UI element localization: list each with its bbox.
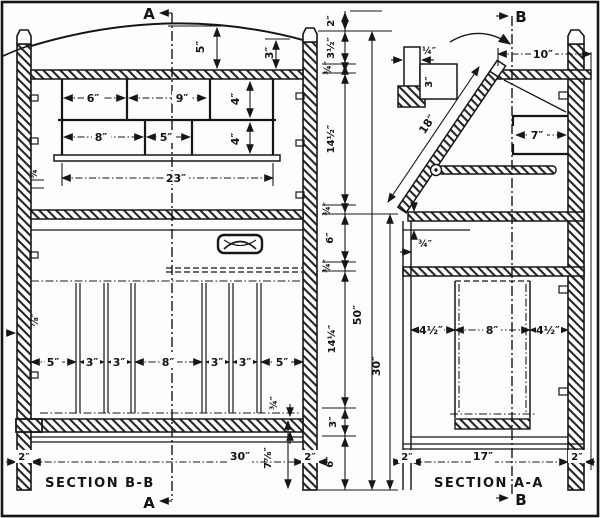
marker-a-top: A: [143, 5, 155, 23]
dim-bb-arch-height: 5″: [194, 41, 207, 54]
marker-a-bottom: A: [143, 494, 155, 512]
marker-b-top: B: [515, 8, 526, 26]
bb-left-post-cap: [17, 30, 31, 44]
aa-lid-stay-rod: [438, 166, 556, 174]
dim-ph-row2-w1: 8″: [95, 131, 108, 144]
chain-seg3: ¾″: [323, 60, 334, 75]
dim-bb-side-thickness: ⅞″: [30, 312, 41, 327]
dim-aa-bottom-middle: 8″: [486, 324, 499, 337]
dim-ph-row2-w2: 5″: [160, 131, 173, 144]
chain-seg9: 3″: [328, 416, 339, 428]
bb-right-leg: [303, 42, 317, 490]
section-aa-title: SECTION A-A: [434, 476, 544, 491]
chain-seg4: 14½″: [326, 124, 337, 153]
dim-aa-front-leg: 2″: [401, 452, 413, 463]
bb-rail-tenon: [16, 419, 42, 432]
aa-drawer-bottom-strip: [455, 419, 530, 429]
aa-stay-pivot-pin: [434, 168, 437, 171]
chain-seg1: 2″: [326, 15, 337, 27]
dim-ph-row1-h: 4″: [229, 93, 242, 106]
dim-ph-total-width: 23″: [166, 172, 186, 185]
dim-slat-6: 3″: [239, 356, 252, 369]
marker-b-bottom: B: [515, 491, 526, 509]
dim-bb-base-height: 7⅞″: [263, 447, 274, 469]
dim-aa-back-post: 2″: [571, 452, 583, 463]
dim-aa-lip-width: ¼″: [422, 46, 437, 57]
dim-aa-bed-thickness: ¾″: [418, 239, 433, 250]
chain-seg2: 3½″: [326, 37, 337, 59]
dim-slat-7: 5″: [276, 356, 289, 369]
dim-bb-left-leg: 2″: [18, 452, 30, 463]
dim-aa-lip-height: 3″: [424, 76, 435, 88]
chain-overall-height: 50″: [351, 305, 364, 325]
bb-right-post-cap: [303, 28, 317, 42]
aa-post-cap: [568, 30, 584, 44]
dim-bb-slat-rail: ¾″: [269, 395, 280, 410]
section-bb-title: SECTION B-B: [45, 476, 155, 491]
dim-ph-row1-w1: 6″: [87, 92, 100, 105]
chain-seg7: ¾″: [322, 258, 333, 273]
dim-bb-rail-thickness: ¾″: [29, 164, 40, 179]
dim-slat-1: 5″: [47, 356, 60, 369]
drawer-pull: [218, 235, 262, 253]
dim-slat-4: 8″: [162, 356, 175, 369]
chain-seg10: 6″: [325, 456, 336, 468]
dim-ph-row1-w2: 9″: [176, 92, 189, 105]
dim-bb-arch-side: 3″: [263, 47, 276, 60]
dim-aa-top-depth: 10″: [533, 48, 553, 61]
bb-writing-bed: [31, 210, 303, 219]
chain-lower-height: 30″: [370, 356, 383, 376]
dim-aa-pigeonhole-depth: 7″: [531, 129, 544, 142]
chain-seg8: 14¼″: [326, 324, 338, 353]
dim-aa-bottom-front: 4½″: [419, 324, 443, 337]
desk-section-drawing: 5″ 3″ 6″ 9″ 4″ 8″ 5″ 4″ 23″ 5″ 3″ 3″ 8″ …: [0, 0, 600, 518]
dim-bb-overall-width: 30″: [230, 450, 250, 463]
pigeonhole-bottom-board: [54, 155, 280, 161]
aa-drawer-bottom-board: [403, 267, 584, 276]
dim-slat-2: 3″: [86, 356, 99, 369]
dim-bb-right-post: 2″: [304, 452, 316, 463]
dim-aa-bottom-back: 4½″: [536, 324, 560, 337]
chain-seg5: ¾″: [322, 201, 333, 216]
bb-top-rail: [31, 70, 303, 79]
dim-slat-3: 3″: [113, 356, 126, 369]
dim-slat-5: 3″: [211, 356, 224, 369]
dim-aa-interior-depth: 17″: [473, 450, 493, 463]
chain-seg6: 6″: [325, 232, 336, 244]
aa-writing-bed: [408, 212, 584, 221]
blueprint-page: 5″ 3″ 6″ 9″ 4″ 8″ 5″ 4″ 23″ 5″ 3″ 3″ 8″ …: [0, 0, 600, 518]
dim-ph-row2-h: 4″: [229, 133, 242, 146]
bb-bottom-rail: [31, 419, 303, 432]
